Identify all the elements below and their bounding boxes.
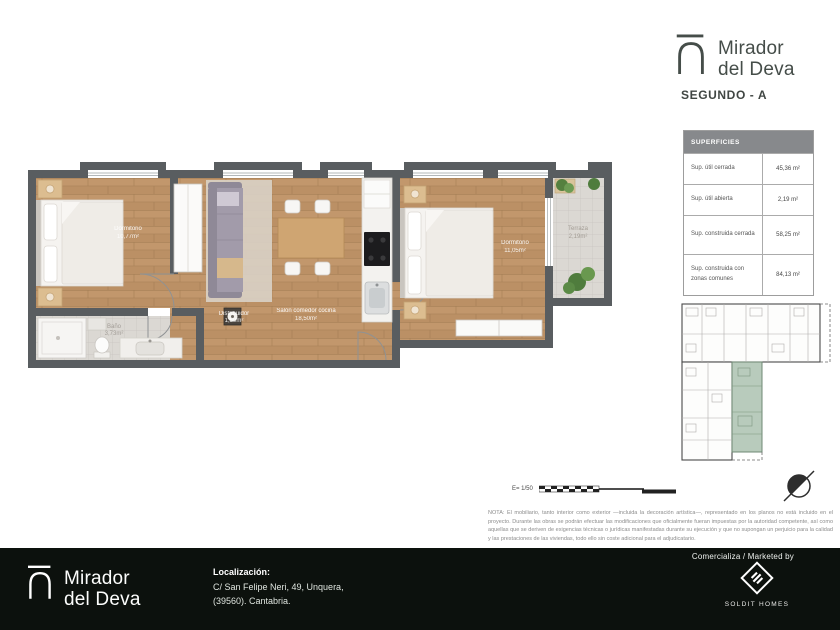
room-area-distribuidor: 1,59m²: [225, 318, 244, 324]
row-label: Sup. útil cerrada: [684, 154, 762, 184]
room-label-bano: Baño: [107, 324, 122, 330]
room-area-bano: 3,73m²: [105, 331, 124, 337]
table-row: Sup. útil cerrada 45,36 m²: [684, 153, 813, 184]
table-row: Sup. construida cerrada 58,25 m²: [684, 215, 813, 254]
room-area-dormitorio-2: 11,05m²: [504, 248, 526, 254]
row-value: 45,36 m²: [762, 154, 813, 184]
kitchen-counter: [362, 178, 392, 322]
scale-graphic: [539, 483, 679, 495]
room-label-terraza: Terraza: [568, 226, 589, 232]
scale-label: E= 1/50: [512, 486, 533, 492]
row-label: Sup. útil abierta: [684, 185, 762, 215]
key-plan: [672, 294, 838, 509]
location-label: Localización:: [213, 567, 344, 577]
footer-brand-line1: Mirador: [64, 569, 141, 590]
brand-line1: Mirador: [718, 39, 795, 60]
agency-block: SOLDIT HOMES: [697, 560, 817, 608]
page-title: SEGUNDO - A: [681, 88, 767, 102]
row-label: Sup. construida cerrada: [684, 216, 762, 254]
address-line1: C/ San Felipe Neri, 49, Unquera,: [213, 581, 344, 595]
scale-bar: E= 1/50: [512, 483, 679, 495]
arch-icon: [24, 563, 56, 601]
room-label-salon: Salón comedor cocina: [276, 308, 336, 314]
table-row: Sup. útil abierta 2,19 m²: [684, 184, 813, 215]
superficies-table: SUPERFICIES Sup. útil cerrada 45,36 m² S…: [683, 130, 814, 296]
row-value: 58,25 m²: [762, 216, 813, 254]
brand-logo: Mirador del Deva: [672, 32, 795, 80]
footer-brand-logo: Mirador del Deva: [24, 563, 141, 610]
arch-icon: [672, 32, 710, 76]
brochure-page: Mirador del Deva SEGUNDO - A SUPERFICIES…: [0, 0, 840, 630]
brand-line2: del Deva: [718, 60, 795, 81]
room-area-dormitorio-1: 10,77m²: [117, 234, 139, 240]
location-block: Localización: C/ San Felipe Neri, 49, Un…: [213, 567, 344, 608]
address-line2: (39560). Cantabria.: [213, 595, 344, 609]
compass-icon: [784, 471, 814, 501]
table-row: Sup. construida con zonas comunes 84,13 …: [684, 254, 813, 295]
highlighted-unit: [732, 362, 762, 452]
room-area-salon: 18,50m²: [295, 316, 317, 322]
disclaimer-note: NOTA: El mobiliario, tanto interior como…: [488, 509, 833, 543]
room-label-distribuidor: Distribuidor: [219, 311, 249, 317]
agency-name: SOLDIT HOMES: [725, 601, 790, 608]
footer-brand-line2: del Deva: [64, 590, 141, 611]
table-header: SUPERFICIES: [684, 131, 813, 153]
row-label: Sup. construida con zonas comunes: [684, 255, 762, 295]
room-label-dormitorio-1: Dormitorio: [114, 226, 142, 232]
footer-bar: Comercializa / Marketed by Mirador del D…: [0, 548, 840, 630]
soldit-homes-icon: [739, 560, 775, 596]
row-value: 84,13 m²: [762, 255, 813, 295]
room-label-dormitorio-2: Dormitorio: [501, 240, 529, 246]
floor-plan: Dormitorio 10,77m² Baño 3,73m² Distribui…: [28, 162, 612, 370]
room-area-terraza: 2,19m²: [569, 234, 588, 240]
row-value: 2,19 m²: [762, 185, 813, 215]
